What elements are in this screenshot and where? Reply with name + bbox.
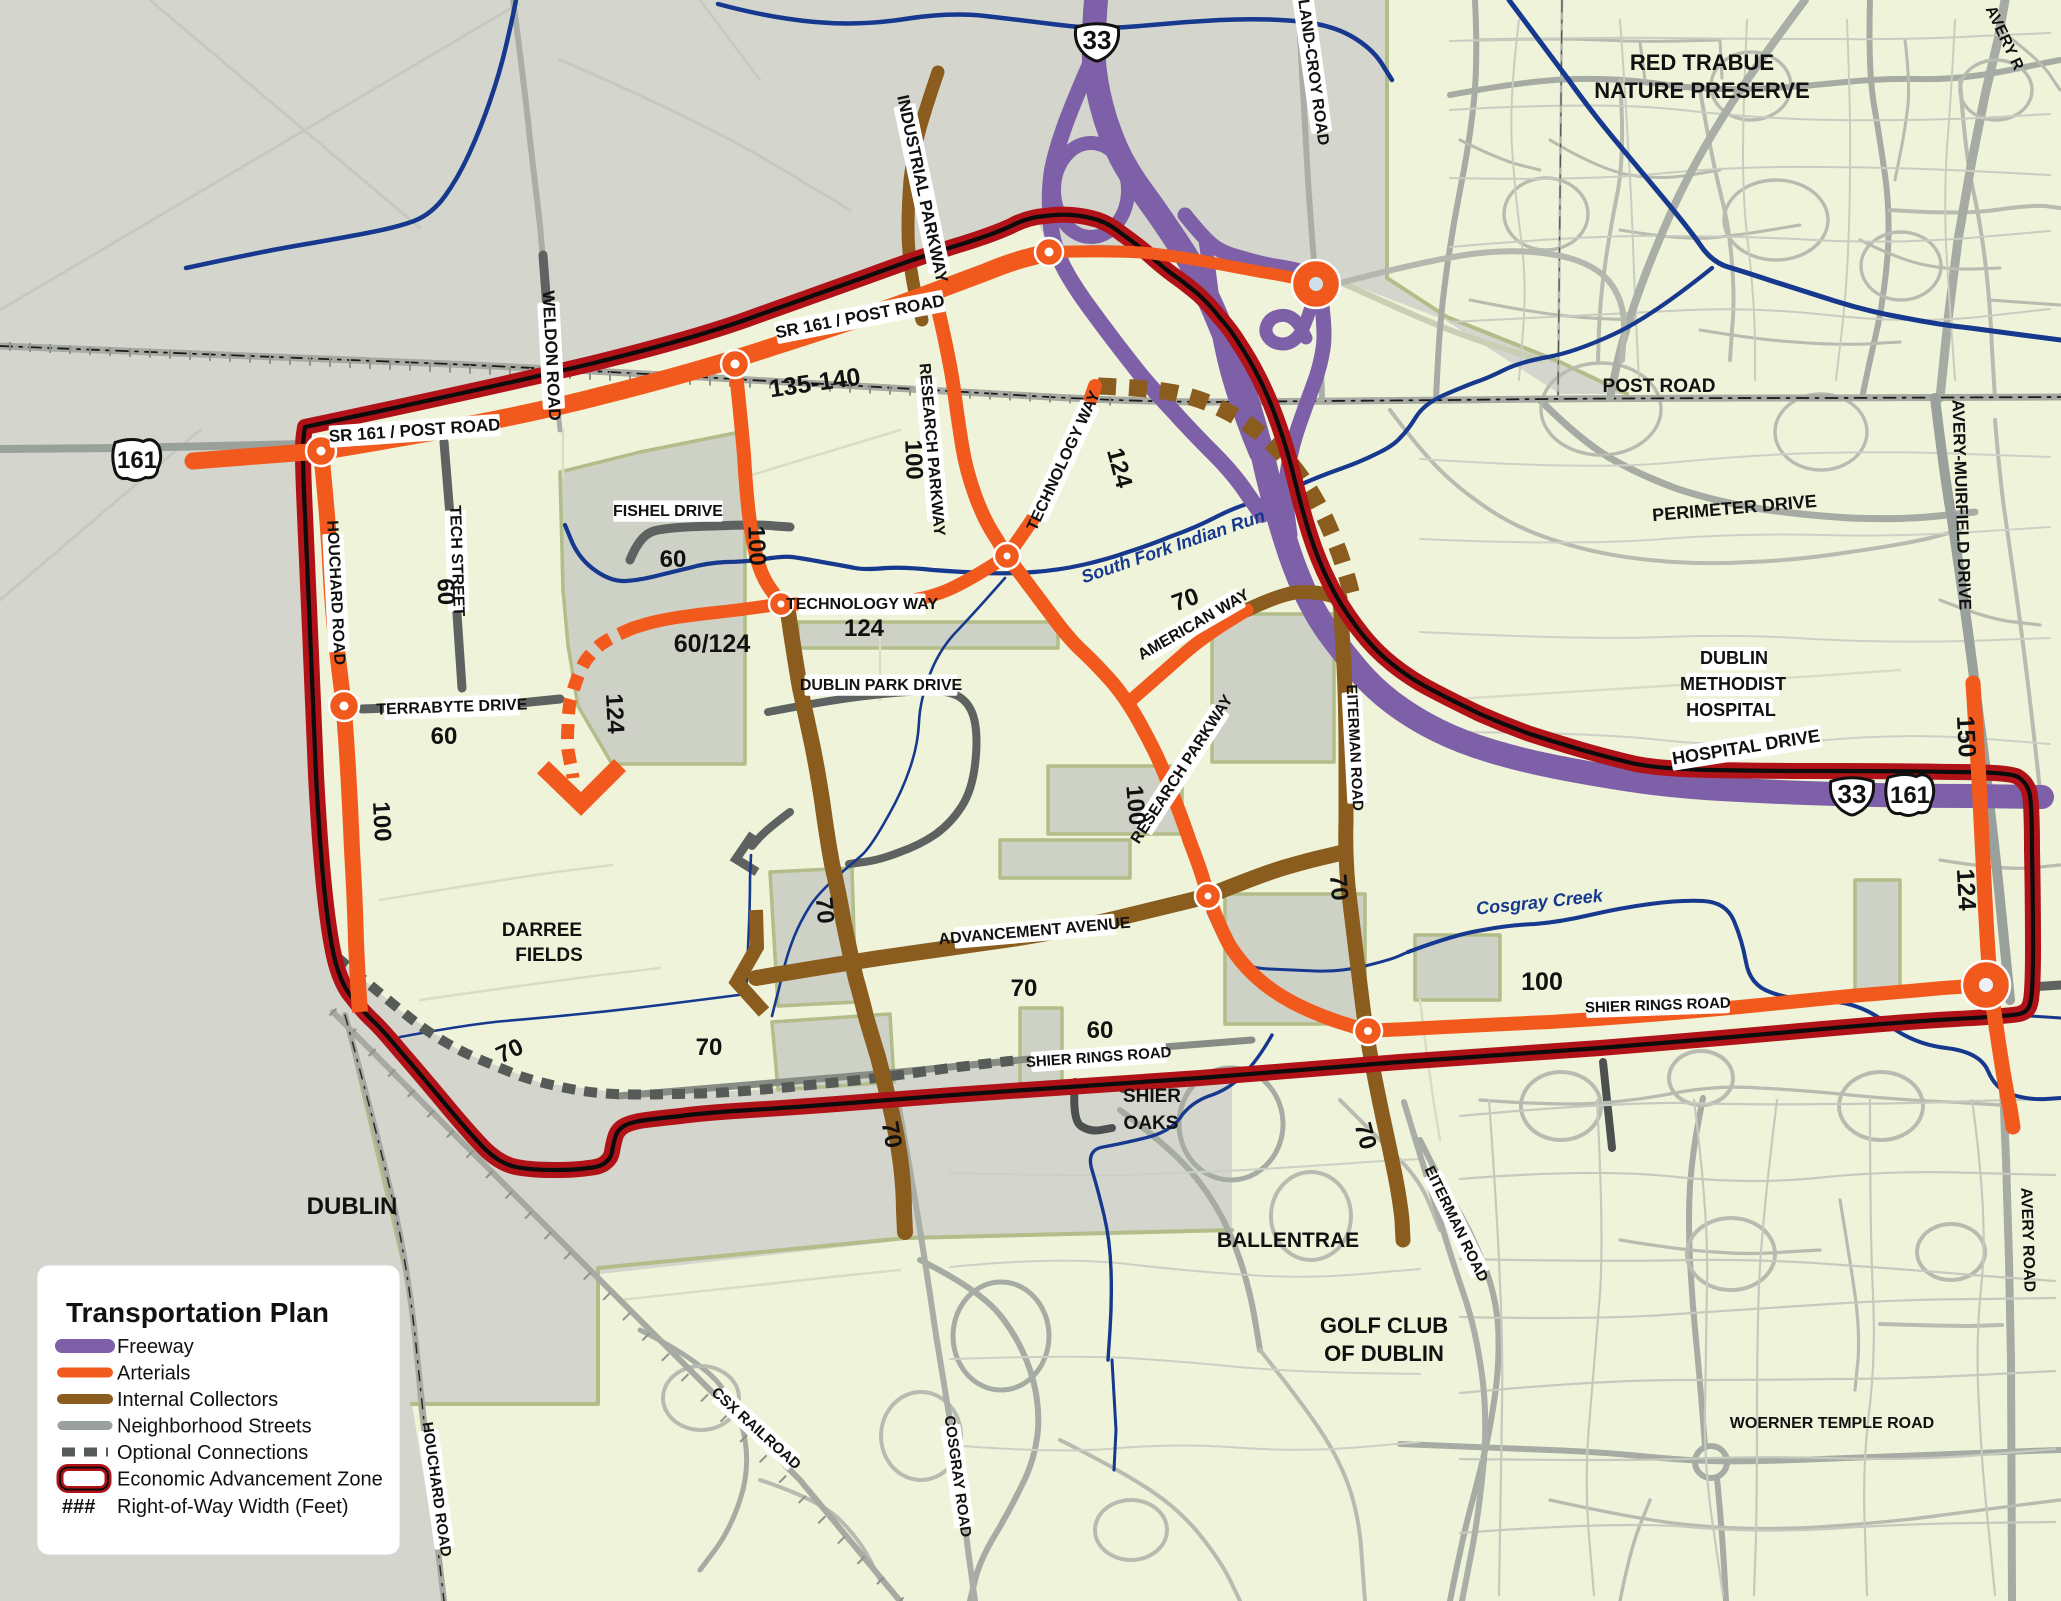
- svg-text:124: 124: [600, 693, 629, 735]
- svg-text:60: 60: [432, 578, 460, 606]
- svg-text:RED TRABUE: RED TRABUE: [1630, 50, 1774, 75]
- svg-text:100: 100: [1521, 968, 1563, 996]
- svg-text:Neighborhood Streets: Neighborhood Streets: [117, 1416, 312, 1438]
- svg-text:60: 60: [431, 723, 458, 750]
- svg-text:OAKS: OAKS: [1124, 1113, 1179, 1134]
- svg-text:33: 33: [1838, 779, 1867, 809]
- svg-text:Arterials: Arterials: [117, 1363, 190, 1385]
- svg-text:70: 70: [810, 896, 839, 925]
- svg-text:Optional Connections: Optional Connections: [117, 1442, 308, 1464]
- svg-text:FIELDS: FIELDS: [515, 945, 583, 966]
- svg-text:70: 70: [1011, 975, 1038, 1002]
- svg-text:161: 161: [117, 447, 157, 474]
- svg-text:DUBLIN: DUBLIN: [1700, 648, 1768, 668]
- svg-text:60: 60: [1087, 1017, 1114, 1044]
- svg-text:SHIER: SHIER: [1123, 1086, 1181, 1107]
- svg-text:GOLF CLUB: GOLF CLUB: [1320, 1313, 1448, 1338]
- svg-text:Economic Advancement Zone: Economic Advancement Zone: [117, 1469, 383, 1491]
- svg-text:150: 150: [1951, 715, 1981, 758]
- svg-text:DARREE: DARREE: [502, 920, 582, 941]
- svg-text:60: 60: [660, 546, 687, 573]
- svg-text:METHODIST: METHODIST: [1680, 674, 1786, 694]
- svg-text:POST ROAD: POST ROAD: [1603, 376, 1716, 397]
- svg-text:###: ###: [62, 1496, 95, 1518]
- svg-text:70: 70: [1324, 873, 1353, 902]
- svg-text:OF DUBLIN: OF DUBLIN: [1324, 1341, 1444, 1366]
- svg-text:Freeway: Freeway: [117, 1336, 194, 1358]
- svg-text:DUBLIN: DUBLIN: [307, 1193, 398, 1220]
- svg-text:70: 70: [696, 1034, 723, 1061]
- svg-text:100: 100: [1120, 784, 1150, 826]
- svg-text:HOSPITAL: HOSPITAL: [1686, 700, 1776, 720]
- svg-text:TECHNOLOGY WAY: TECHNOLOGY WAY: [786, 596, 938, 613]
- svg-text:100: 100: [899, 439, 927, 480]
- svg-text:FISHEL DRIVE: FISHEL DRIVE: [613, 503, 723, 520]
- svg-text:Right-of-Way Width (Feet): Right-of-Way Width (Feet): [117, 1496, 349, 1518]
- svg-text:WOERNER TEMPLE ROAD: WOERNER TEMPLE ROAD: [1730, 1415, 1934, 1432]
- svg-text:BALLENTRAE: BALLENTRAE: [1217, 1229, 1359, 1252]
- svg-text:33: 33: [1083, 25, 1112, 55]
- svg-text:161: 161: [1890, 782, 1930, 809]
- svg-text:70: 70: [876, 1119, 907, 1150]
- svg-text:100: 100: [367, 801, 396, 842]
- svg-text:NATURE PRESERVE: NATURE PRESERVE: [1594, 78, 1810, 103]
- svg-text:Transportation Plan: Transportation Plan: [66, 1297, 329, 1328]
- svg-text:124: 124: [844, 615, 885, 642]
- svg-text:DUBLIN PARK DRIVE: DUBLIN PARK DRIVE: [800, 677, 963, 694]
- svg-text:Internal Collectors: Internal Collectors: [117, 1389, 278, 1411]
- svg-text:124: 124: [1951, 868, 1981, 911]
- svg-text:100: 100: [742, 525, 770, 566]
- svg-text:60/124: 60/124: [674, 630, 751, 658]
